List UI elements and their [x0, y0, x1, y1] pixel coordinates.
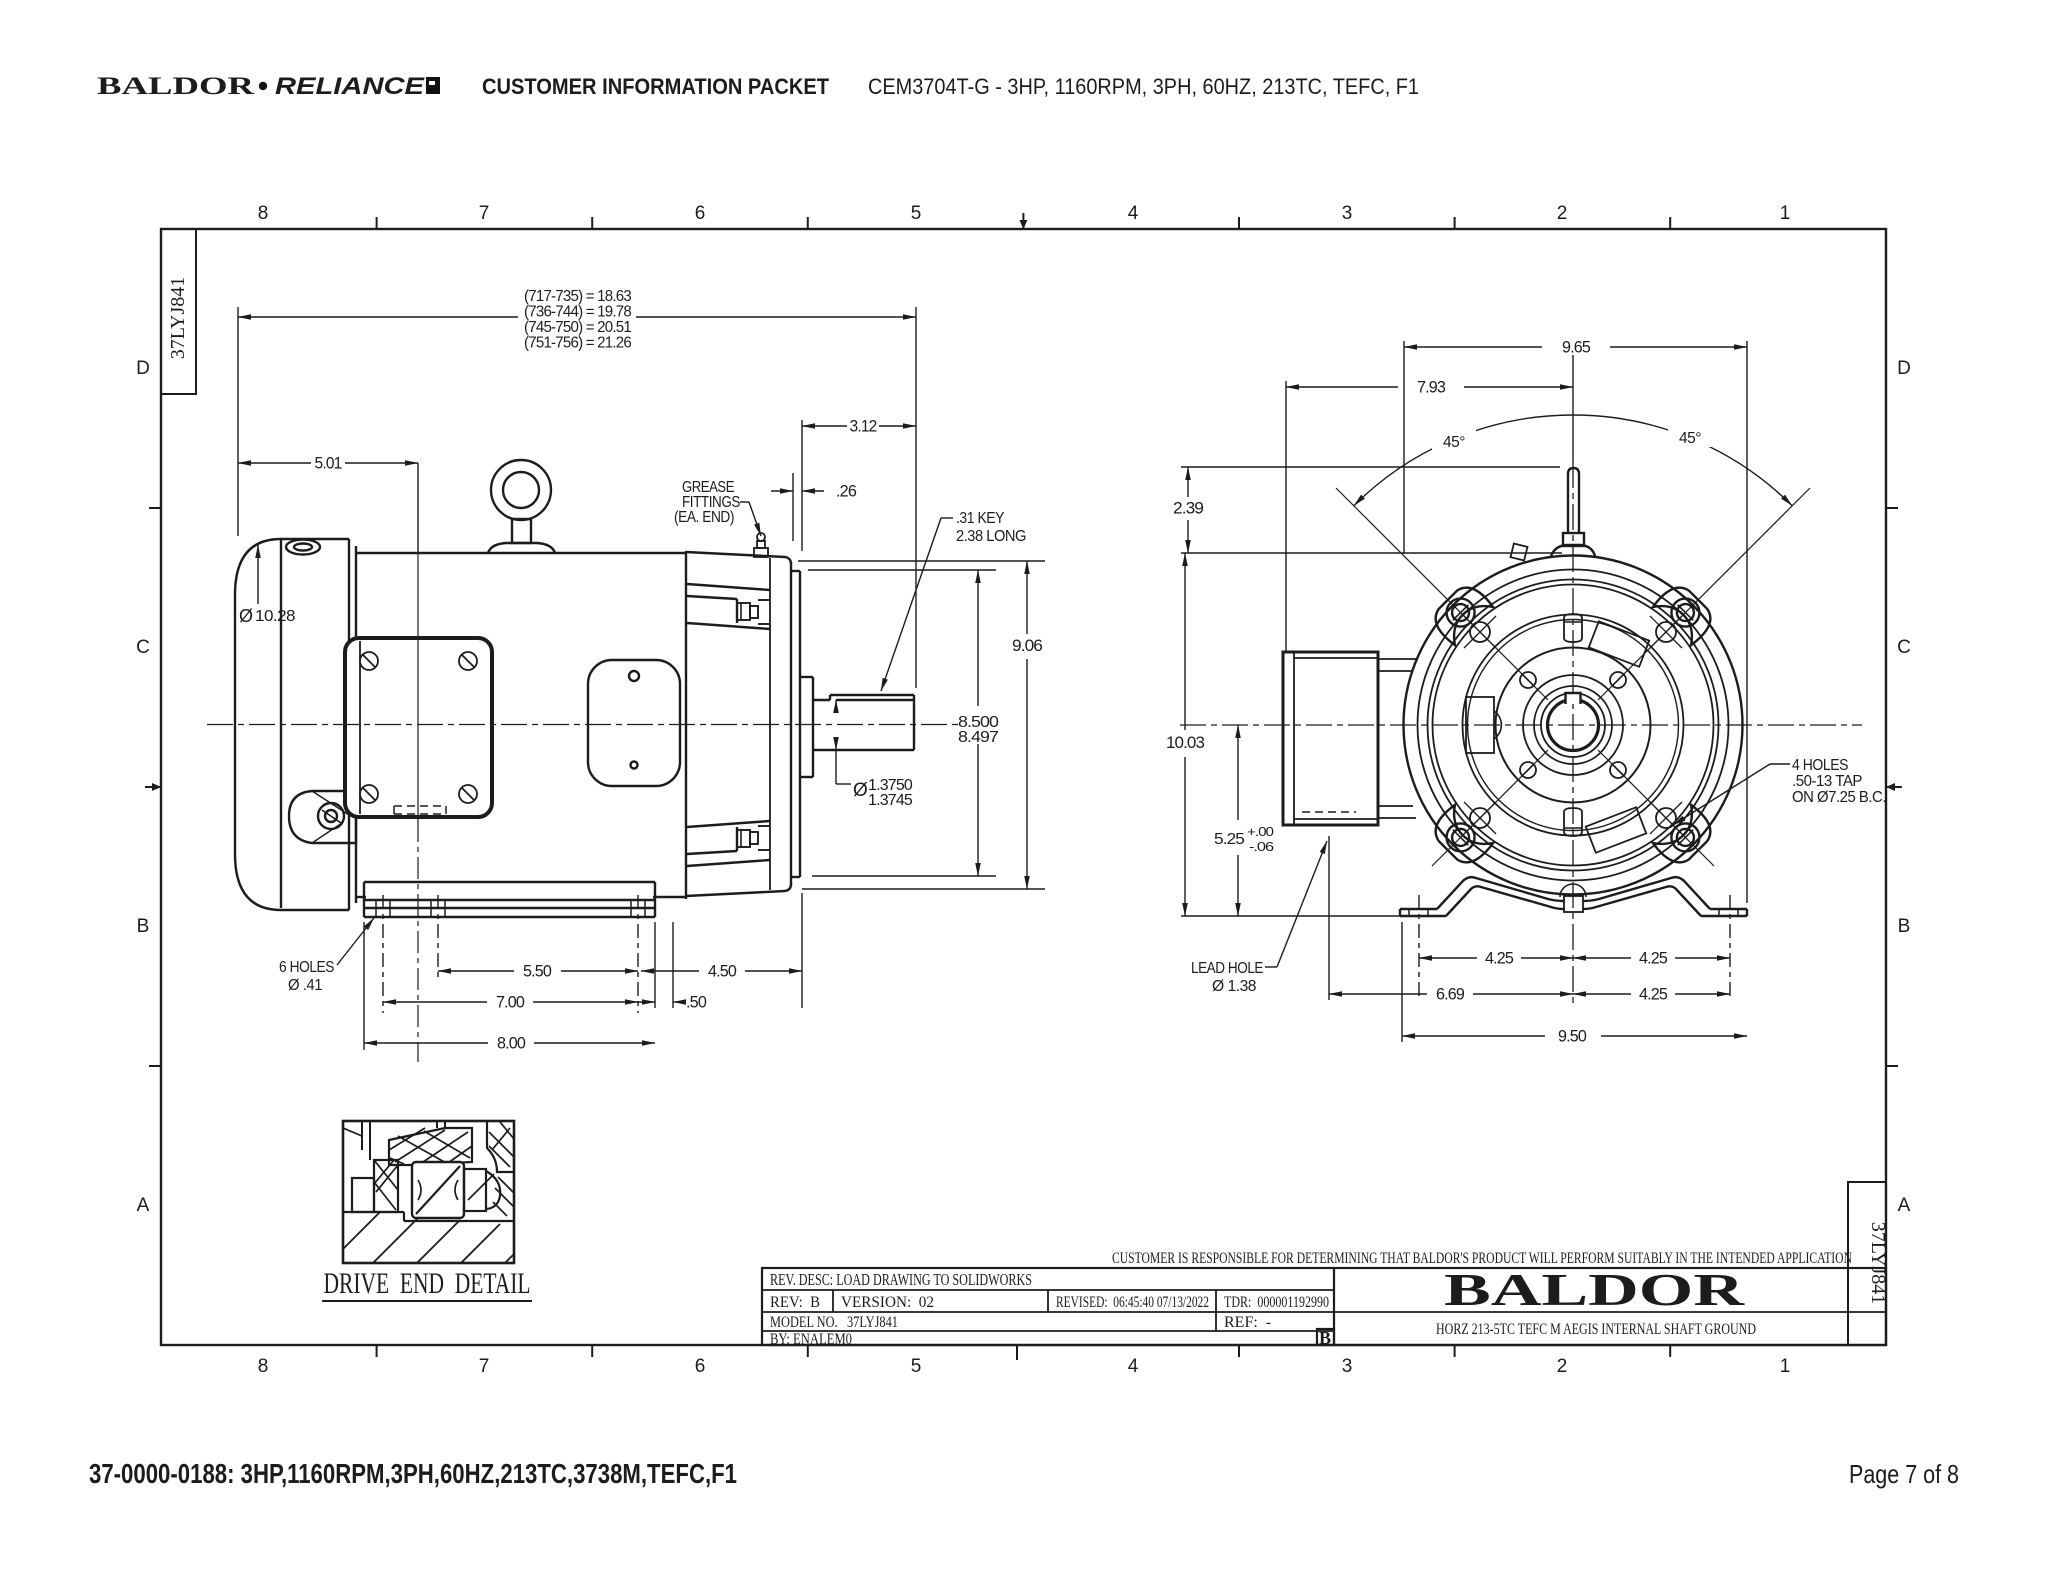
svg-text:REV. DESC: LOAD DRAWING TO SOL: REV. DESC: LOAD DRAWING TO SOLIDWORKS [770, 1270, 1032, 1289]
svg-text:4: 4 [1128, 203, 1139, 224]
svg-text:6 HOLES: 6 HOLES [279, 959, 334, 976]
svg-text:1: 1 [1780, 1356, 1791, 1377]
svg-text:REV: B: REV: B [770, 1294, 820, 1311]
svg-text:8.00: 8.00 [497, 1034, 525, 1053]
svg-text:2.38 LONG: 2.38 LONG [956, 528, 1026, 545]
svg-text:7.93: 7.93 [1417, 378, 1445, 397]
svg-text:2: 2 [1557, 203, 1568, 224]
svg-text:B: B [1319, 1328, 1331, 1348]
svg-text:9.50: 9.50 [1558, 1027, 1586, 1046]
svg-text:-.06: -.06 [1249, 840, 1274, 854]
svg-text:8.497: 8.497 [958, 729, 998, 746]
svg-text:4: 4 [1128, 1356, 1139, 1377]
svg-text:9.06: 9.06 [1012, 636, 1042, 655]
svg-text:(751-756) = 21.26: (751-756) = 21.26 [524, 335, 631, 352]
svg-text:Ø .41: Ø .41 [288, 977, 322, 994]
svg-text:A: A [137, 1195, 150, 1216]
svg-text:.50: .50 [686, 993, 706, 1012]
svg-text:37LYJ841: 37LYJ841 [167, 277, 189, 359]
svg-text:ON Ø7.25 B.C.: ON Ø7.25 B.C. [1792, 789, 1886, 806]
svg-text:CUSTOMER INFORMATION PACKET: CUSTOMER INFORMATION PACKET [482, 74, 830, 99]
svg-text:.31 KEY: .31 KEY [956, 510, 1004, 527]
svg-text:VERSION: 02: VERSION: 02 [841, 1294, 934, 1311]
svg-text:45°: 45° [1443, 434, 1465, 451]
svg-text:(736-744) = 19.78: (736-744) = 19.78 [524, 304, 631, 321]
svg-text:D: D [136, 358, 150, 379]
svg-text:BALDOR: BALDOR [97, 73, 255, 100]
svg-text:4 HOLES: 4 HOLES [1792, 757, 1848, 774]
svg-text:10.03: 10.03 [1166, 733, 1204, 752]
svg-text:8: 8 [258, 203, 269, 224]
svg-text:RELIANCE: RELIANCE [275, 73, 425, 100]
svg-text:6.69: 6.69 [1436, 985, 1464, 1004]
svg-text:5.01: 5.01 [315, 454, 342, 473]
svg-text:1.3745: 1.3745 [868, 792, 912, 809]
svg-text:4.25: 4.25 [1639, 985, 1667, 1004]
svg-text:.50-13 TAP: .50-13 TAP [1792, 773, 1862, 790]
svg-text:Ø: Ø [239, 606, 253, 626]
svg-text:C: C [136, 637, 150, 658]
svg-text:DRIVE END DETAIL: DRIVE END DETAIL [324, 1267, 531, 1300]
svg-text:BY: ENALEM0: BY: ENALEM0 [770, 1331, 852, 1348]
svg-text:7: 7 [479, 1356, 490, 1377]
svg-text:REF: -: REF: - [1224, 1314, 1271, 1331]
svg-text:2.39: 2.39 [1173, 499, 1203, 518]
svg-text:6: 6 [695, 1356, 706, 1377]
svg-text:4.25: 4.25 [1485, 949, 1513, 968]
svg-text:(717-735) = 18.63: (717-735) = 18.63 [524, 288, 631, 305]
svg-text:7.00: 7.00 [496, 993, 524, 1012]
svg-text:4.25: 4.25 [1639, 949, 1667, 968]
svg-text:HORZ 213-5TC TEFC M AEGIS INTE: HORZ 213-5TC TEFC M AEGIS INTERNAL SHAFT… [1436, 1321, 1756, 1338]
svg-text:45°: 45° [1679, 430, 1701, 447]
svg-text:A: A [1898, 1195, 1911, 1216]
svg-text:LEAD HOLE: LEAD HOLE [1191, 960, 1263, 977]
svg-text:5: 5 [911, 1356, 922, 1377]
svg-text:5.50: 5.50 [523, 962, 551, 981]
svg-text:3: 3 [1342, 1356, 1353, 1377]
svg-text:REVISED: 06:45:40 07/13/2022: REVISED: 06:45:40 07/13/2022 [1056, 1294, 1209, 1311]
svg-text:Page 7 of 8: Page 7 of 8 [1849, 1459, 1959, 1489]
svg-text:3: 3 [1342, 203, 1353, 224]
svg-text:2: 2 [1557, 1356, 1568, 1377]
svg-text:37-0000-0188: 3HP,1160RPM,3PH,: 37-0000-0188: 3HP,1160RPM,3PH,60HZ,213TC… [89, 1458, 737, 1489]
svg-text:4.50: 4.50 [708, 962, 736, 981]
svg-text:5: 5 [911, 203, 922, 224]
svg-text:1: 1 [1780, 203, 1791, 224]
svg-text:7: 7 [479, 203, 490, 224]
svg-text:8: 8 [258, 1356, 269, 1377]
svg-text:BALDOR: BALDOR [1444, 1264, 1745, 1315]
svg-text:(EA. END): (EA. END) [674, 509, 734, 526]
svg-text:MODEL NO. 37LYJ841: MODEL NO. 37LYJ841 [770, 1314, 898, 1331]
svg-text:TDR: 000001192990: TDR: 000001192990 [1224, 1294, 1329, 1311]
svg-text:5.25: 5.25 [1214, 831, 1244, 848]
svg-text:.26: .26 [836, 482, 856, 501]
svg-text:3.12: 3.12 [850, 417, 877, 436]
svg-text:10.28: 10.28 [255, 608, 295, 625]
svg-text:Ø: Ø [853, 780, 868, 801]
svg-text:Ø 1.38: Ø 1.38 [1212, 978, 1256, 995]
svg-text:D: D [1897, 358, 1911, 379]
svg-text:C: C [1897, 637, 1911, 658]
svg-text:9.65: 9.65 [1562, 338, 1590, 357]
svg-text:6: 6 [695, 203, 706, 224]
svg-text:CEM3704T-G - 3HP, 1160RPM, 3PH: CEM3704T-G - 3HP, 1160RPM, 3PH, 60HZ, 21… [868, 74, 1419, 99]
svg-text:(745-750) = 20.51: (745-750) = 20.51 [524, 319, 631, 336]
svg-text:B: B [1898, 916, 1911, 937]
svg-text:+.00: +.00 [1247, 825, 1274, 839]
svg-text:B: B [137, 916, 150, 937]
